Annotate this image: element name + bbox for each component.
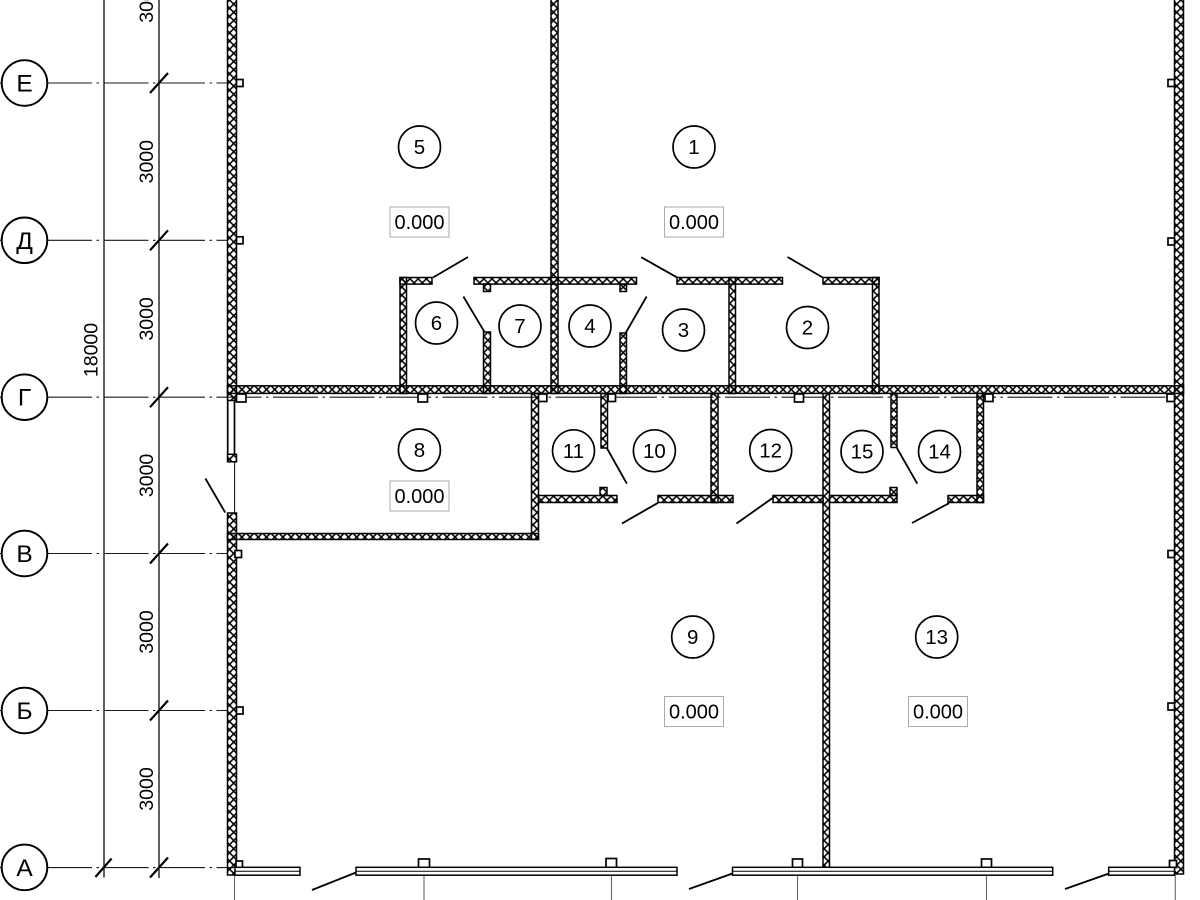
svg-text:0.000: 0.000	[913, 701, 963, 723]
svg-text:В: В	[16, 541, 32, 568]
svg-text:14: 14	[928, 441, 951, 464]
svg-text:Е: Е	[16, 71, 32, 98]
svg-text:Б: Б	[16, 698, 32, 725]
svg-text:А: А	[16, 855, 33, 882]
svg-text:0.000: 0.000	[669, 212, 719, 234]
svg-text:18000: 18000	[81, 323, 103, 377]
svg-text:9: 9	[687, 626, 698, 649]
svg-text:11: 11	[563, 440, 584, 463]
svg-text:3: 3	[678, 319, 689, 342]
svg-text:8: 8	[414, 439, 425, 462]
svg-text:7: 7	[514, 315, 525, 338]
svg-text:3000: 3000	[136, 454, 158, 498]
svg-text:12: 12	[759, 440, 782, 463]
svg-text:3000: 3000	[136, 140, 158, 184]
svg-text:0.000: 0.000	[394, 486, 444, 508]
svg-text:3000: 3000	[136, 0, 158, 23]
svg-text:0.000: 0.000	[669, 701, 719, 723]
svg-text:1: 1	[688, 136, 699, 159]
svg-text:13: 13	[925, 626, 948, 649]
svg-text:Г: Г	[18, 385, 31, 412]
svg-text:6: 6	[431, 312, 442, 335]
svg-text:3000: 3000	[136, 297, 158, 341]
svg-text:10: 10	[643, 440, 666, 463]
svg-text:Д: Д	[16, 228, 33, 255]
svg-text:2: 2	[802, 317, 813, 340]
svg-text:15: 15	[851, 441, 874, 464]
svg-text:3000: 3000	[136, 767, 158, 811]
svg-text:4: 4	[584, 315, 595, 338]
svg-text:5: 5	[414, 136, 425, 159]
svg-text:0.000: 0.000	[394, 212, 444, 234]
svg-text:3000: 3000	[136, 610, 158, 654]
